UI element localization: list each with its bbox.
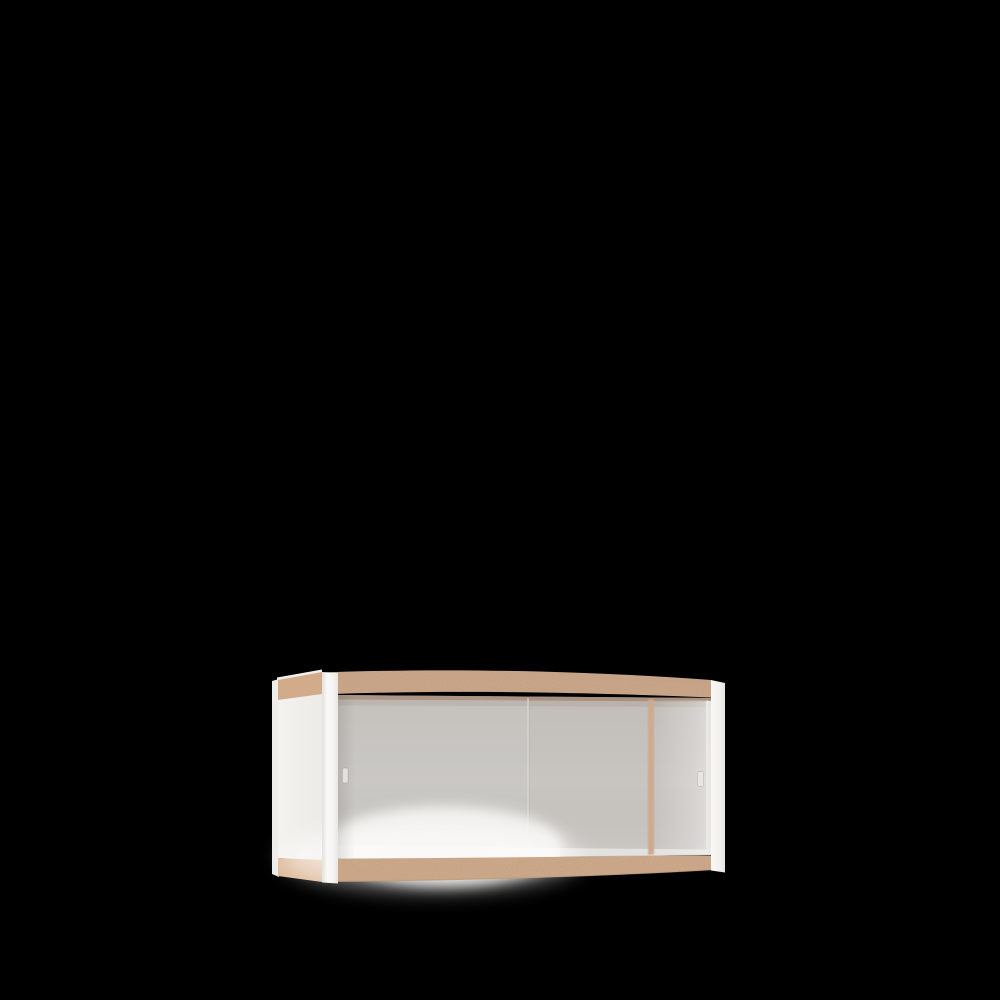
inner-right-wall-sliver bbox=[706, 701, 711, 855]
front-left-post bbox=[322, 672, 338, 884]
cabinet bbox=[272, 670, 725, 892]
interior-wood-divider bbox=[648, 699, 654, 855]
cabinet-render bbox=[0, 0, 1000, 1000]
product-render-canvas bbox=[0, 0, 1000, 1000]
finger-pull-left-door bbox=[343, 768, 349, 783]
side-panel-rear-edge bbox=[272, 679, 279, 877]
front-right-post bbox=[711, 680, 725, 873]
finger-pull-right-door bbox=[698, 772, 704, 787]
